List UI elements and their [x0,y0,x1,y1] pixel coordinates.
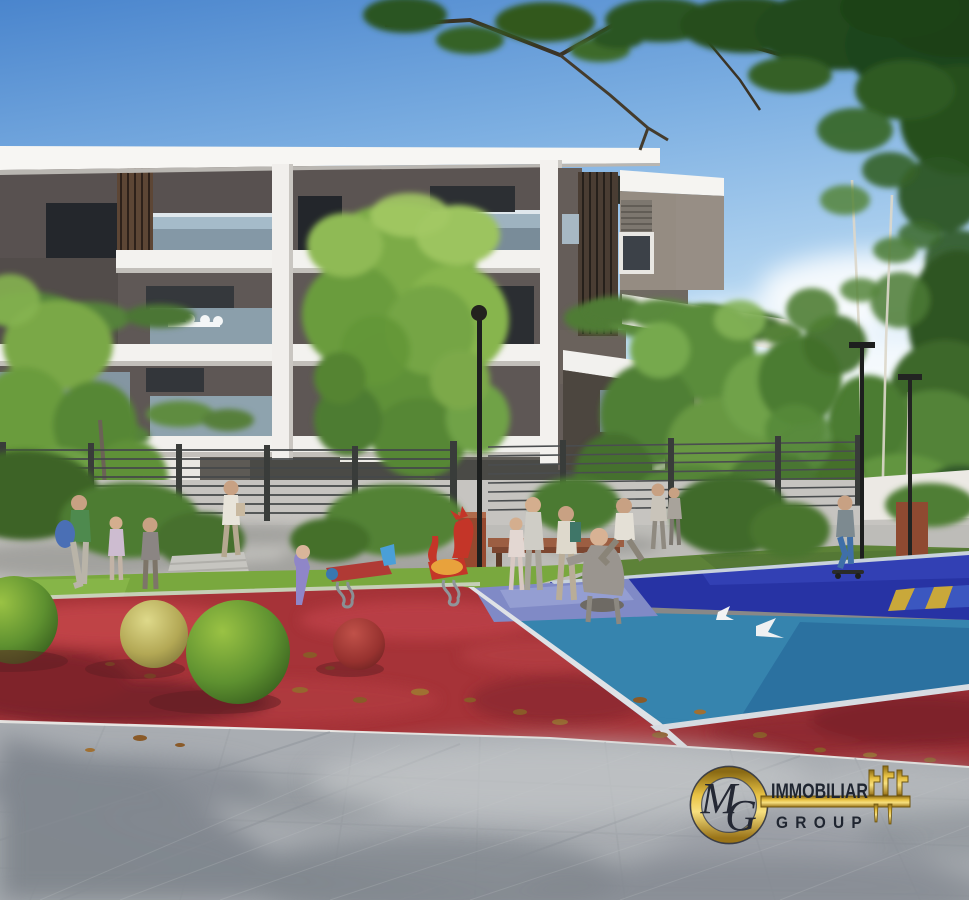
svg-text:IMMOBILIAR: IMMOBILIAR [771,780,868,803]
svg-text:GROUP: GROUP [776,813,869,832]
svg-text:G: G [725,791,757,840]
